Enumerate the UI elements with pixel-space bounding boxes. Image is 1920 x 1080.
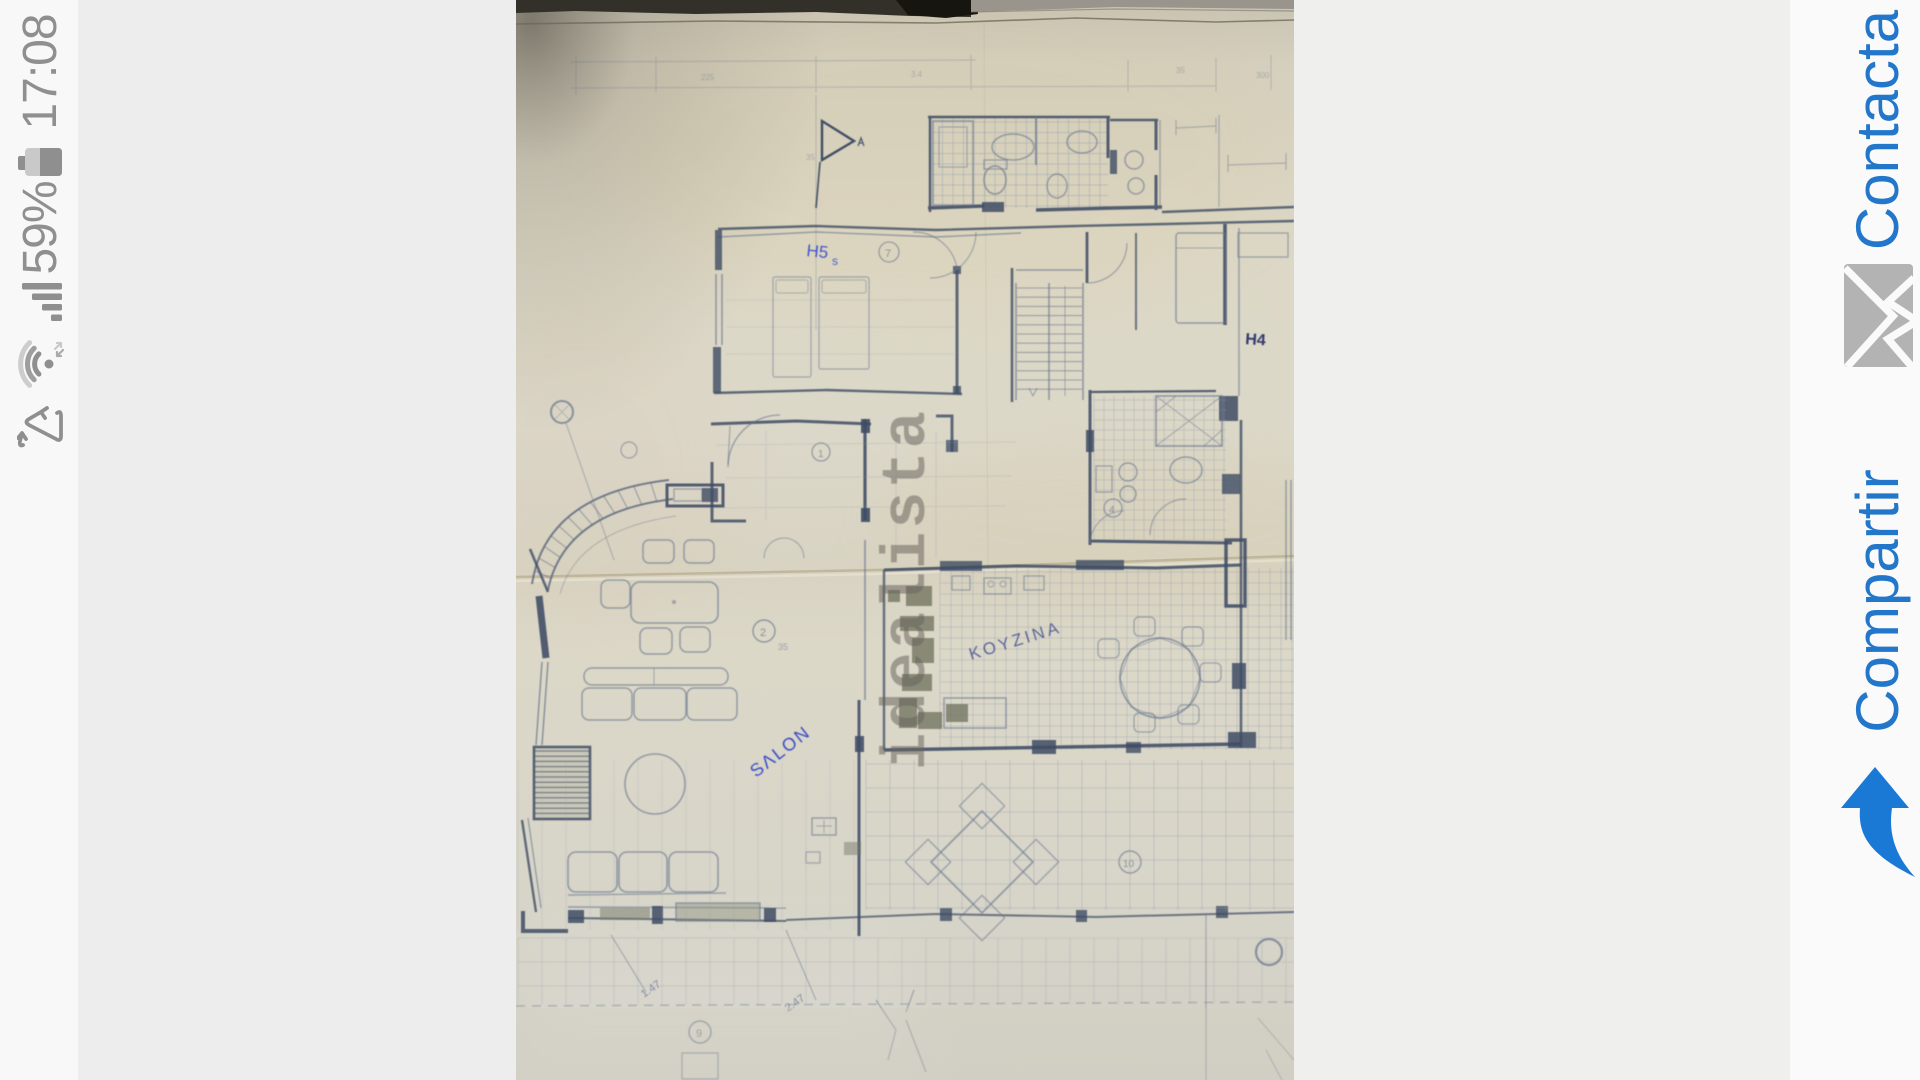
svg-text:35: 35	[1176, 66, 1185, 75]
svg-text:H4: H4	[1245, 331, 1267, 349]
svg-text:225: 225	[701, 73, 715, 82]
svg-text:4: 4	[1109, 505, 1115, 516]
svg-text:300: 300	[1256, 71, 1270, 80]
svg-text:3.4: 3.4	[911, 70, 923, 79]
svg-text:35: 35	[806, 153, 815, 162]
svg-text:idealista: idealista	[872, 408, 943, 770]
svg-text:35: 35	[778, 642, 788, 652]
svg-text:s: s	[832, 254, 838, 268]
svg-text:1: 1	[818, 449, 824, 460]
svg-text:H5: H5	[806, 241, 830, 262]
svg-text:2: 2	[760, 627, 766, 639]
svg-text:7: 7	[885, 248, 891, 260]
svg-text:10: 10	[1123, 859, 1135, 870]
